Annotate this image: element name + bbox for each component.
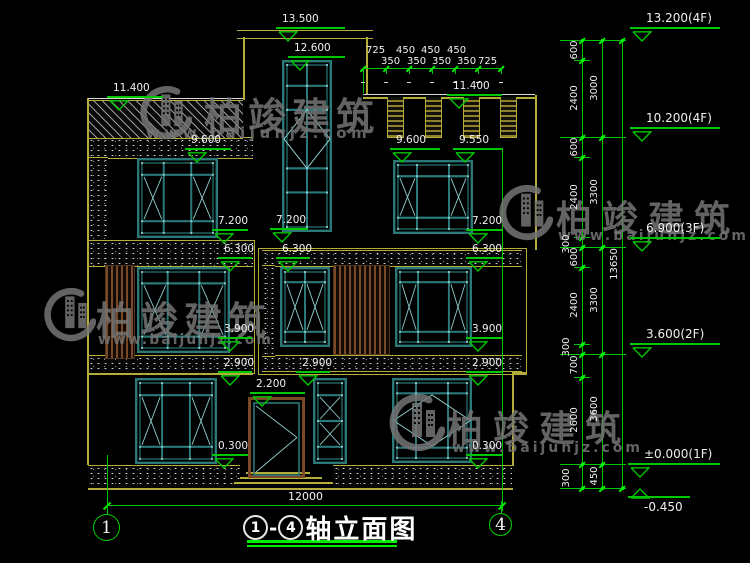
dimension-node [621, 487, 624, 490]
merlon [425, 97, 442, 138]
elevation-marker-label: 2.900 [224, 358, 254, 369]
top-dim-value: 350 [407, 57, 426, 67]
elevation-marker-triangle [220, 339, 240, 350]
elevation-marker-label: 13.200(4F) [646, 12, 712, 24]
watermark-logo-icon [385, 393, 445, 455]
dimension-node [601, 39, 604, 42]
stone-band [333, 465, 512, 490]
dimension-node [601, 487, 604, 490]
chain-dim-value: 2400 [570, 292, 580, 317]
extension-stub [409, 68, 410, 74]
elevation-marker-label: 7.200 [472, 216, 502, 227]
dimension-node [581, 487, 584, 490]
chain-dim-value: 3300 [590, 287, 600, 312]
top-dim-value: 725 [366, 46, 385, 56]
chain-dim-value: 600 [570, 247, 580, 266]
elevation-marker-label: 0.300 [218, 441, 248, 452]
elevation-marker-triangle [298, 373, 318, 384]
elevation-marker-label: 6.300 [282, 244, 312, 255]
bottom-dimension-line [107, 505, 502, 506]
dimension-node [581, 266, 584, 269]
elevation-marker-triangle [632, 129, 652, 140]
elevation-marker-label: 6.900(3F) [646, 222, 704, 234]
extension-stub [432, 68, 433, 74]
dimension-node [581, 59, 584, 62]
window-3f-center-left [280, 267, 330, 347]
extension-stub [501, 68, 502, 74]
chain-dim-value: 600 [570, 40, 580, 59]
axis-bubble-stem [107, 502, 108, 514]
top-dim-value: 450 [421, 46, 440, 56]
elevation-marker-label: 10.200(4F) [646, 112, 712, 124]
elevation-marker-label: 2.200 [256, 379, 286, 390]
dimension-node [581, 353, 584, 356]
chain-dim-value: 2600 [570, 407, 580, 432]
elevation-marker-triangle [468, 231, 488, 242]
top-dim-value: 450 [396, 46, 415, 56]
elevation-marker-label: 9.550 [459, 135, 489, 146]
elevation-marker-label: 2.900 [472, 358, 502, 369]
extension-stub [386, 68, 387, 74]
extension-stub [455, 68, 456, 74]
cad-elevation-drawing: 柏竣建筑www.baijunjz.com 柏竣建筑www.baijunjz.co… [0, 0, 750, 563]
wood-louver-panel [333, 265, 390, 355]
chain-dim-value: 2400 [570, 85, 580, 110]
elevation-marker-triangle [455, 150, 475, 161]
elevation-marker-triangle [392, 150, 412, 161]
elevation-marker-label: 9.600 [191, 135, 221, 146]
elevation-marker-triangle [632, 345, 652, 356]
elevation-marker-label: 7.200 [276, 215, 306, 226]
axis-bubble-1: 1 [93, 514, 120, 541]
drawing-title: 1 - 4 轴立面图 [243, 509, 417, 546]
extension-stub [363, 68, 364, 74]
merlon [387, 97, 404, 138]
dimension-node [601, 353, 604, 356]
chain-dim-value: 300 [562, 468, 572, 487]
entrance-step [234, 482, 333, 484]
top-dim-value: 450 [447, 46, 466, 56]
elevation-marker-triangle [272, 230, 292, 241]
elevation-marker-label: 2.900 [302, 358, 332, 369]
dimension-node [581, 343, 584, 346]
top-dim-value: 350 [457, 57, 476, 67]
elevation-marker-triangle [449, 96, 469, 107]
window-4f-right [393, 160, 473, 234]
elevation-marker-triangle [109, 98, 129, 109]
chain-dim-value: 2400 [570, 184, 580, 209]
elevation-marker-triangle [630, 486, 650, 497]
elevation-marker-label: 0.300 [472, 441, 502, 452]
axis-bubble-stem [501, 501, 502, 513]
elevation-marker-triangle [290, 58, 310, 69]
dimension-node [601, 136, 604, 139]
elevation-marker-label: 3.600(2F) [646, 328, 704, 340]
elevation-marker-label: 3.900 [224, 324, 254, 335]
watermark-logo-icon [495, 182, 553, 246]
elevation-marker-label: 7.200 [218, 216, 248, 227]
wall-line [87, 98, 89, 465]
title-axis-start-bubble: 1 [243, 515, 268, 540]
title-text: 轴立面图 [305, 509, 417, 546]
elevation-marker-label: -0.450 [644, 501, 683, 513]
elevation-marker-triangle [278, 259, 298, 270]
elevation-marker-triangle [187, 150, 207, 161]
dimension-node [581, 246, 584, 249]
window-4f-left [137, 158, 218, 238]
elevation-marker-triangle [468, 373, 488, 384]
elevation-marker-label: 6.300 [472, 244, 502, 255]
elevation-marker-triangle [252, 394, 272, 405]
chain-dim-value: 600 [570, 137, 580, 156]
chain-connector-line [560, 488, 626, 489]
top-dim-value: 350 [381, 57, 400, 67]
witness-dash [361, 82, 365, 83]
overall-width-dimension: 12000 [288, 491, 323, 502]
dimension-node [601, 246, 604, 249]
elevation-marker-triangle [468, 259, 488, 270]
tower-roof-slab [237, 30, 373, 39]
elevation-marker-triangle [278, 29, 298, 40]
dimension-node [581, 463, 584, 466]
chain-dim-value: 13650 [610, 248, 620, 280]
elevation-marker-label: 12.600 [294, 43, 331, 54]
stone-band [88, 157, 108, 242]
elevation-marker-triangle [214, 456, 234, 467]
witness-dash [499, 82, 503, 83]
witness-dash [384, 82, 388, 83]
elevation-marker-triangle [468, 339, 488, 350]
top-dim-value: 350 [432, 57, 451, 67]
chain-dim-value: 3600 [590, 396, 600, 421]
elevation-marker-triangle [632, 239, 652, 250]
extension-stub [478, 68, 479, 74]
chain-dim-value: 3000 [590, 75, 600, 100]
witness-dash [407, 82, 411, 83]
elevation-marker-triangle [220, 373, 240, 384]
chain-dim-value: 3300 [590, 179, 600, 204]
elevation-marker-label: ±0.000(1F) [644, 448, 712, 460]
elevation-marker-label: 11.400 [453, 81, 490, 92]
dimension-node [581, 39, 584, 42]
watermark-url-text: www.baijunjz.com [146, 124, 371, 142]
elevation-marker-triangle [630, 465, 650, 476]
stone-band [88, 465, 240, 490]
window-1f-left [135, 378, 217, 464]
chain-dim-value: 700 [570, 355, 580, 374]
window-1f-narrow [313, 378, 347, 464]
chain-dim-value: 450 [590, 466, 600, 485]
elevation-marker-label: 13.500 [282, 14, 319, 25]
entrance-door [248, 397, 305, 478]
elevation-marker-triangle [214, 231, 234, 242]
elevation-marker-triangle [632, 29, 652, 40]
dimension-node [581, 136, 584, 139]
wall-line [512, 372, 526, 374]
elevation-marker-triangle [468, 456, 488, 467]
dimension-node [601, 463, 604, 466]
chain-connector-line [560, 464, 626, 465]
dimension-node [581, 376, 584, 379]
elevation-marker-label: 3.900 [472, 324, 502, 335]
title-axis-end-bubble: 4 [278, 515, 303, 540]
elevation-marker-label: 6.300 [224, 244, 254, 255]
elevation-marker-label: 9.600 [396, 135, 426, 146]
axis-bubble-4: 4 [489, 513, 512, 536]
elevation-marker-label: 11.400 [113, 83, 150, 94]
dimension-node [621, 39, 624, 42]
chain-dim-value: 300 [562, 337, 572, 356]
watermark-logo-icon [40, 286, 96, 346]
top-dim-value: 725 [478, 57, 497, 67]
dimension-node [581, 156, 584, 159]
merlon [500, 97, 517, 138]
title-dash: - [269, 516, 277, 540]
elevation-marker-triangle [220, 259, 240, 270]
window-3f-center-right [395, 267, 472, 347]
witness-dash [430, 82, 434, 83]
